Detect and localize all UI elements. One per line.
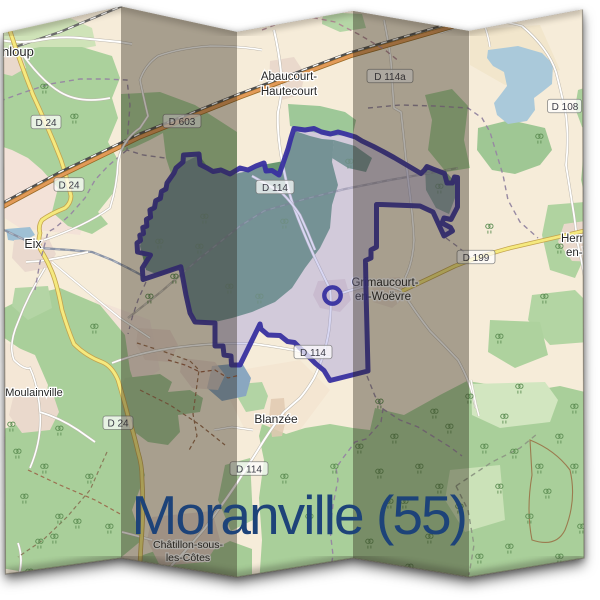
svg-text:Abaucourt-: Abaucourt-	[261, 71, 317, 83]
svg-text:D 108: D 108	[552, 102, 579, 113]
svg-text:D 114: D 114	[262, 183, 288, 194]
svg-text:Hautecourt: Hautecourt	[261, 86, 318, 98]
svg-text:Eix: Eix	[24, 237, 42, 251]
svg-text:D 24: D 24	[35, 118, 57, 129]
svg-text:D 114: D 114	[300, 348, 326, 359]
svg-text:nloup: nloup	[2, 44, 34, 59]
svg-text:D 24: D 24	[58, 181, 80, 192]
svg-text:Moranville (55): Moranville (55)	[132, 484, 466, 546]
svg-text:Moulainville: Moulainville	[5, 387, 62, 399]
svg-text:D 114: D 114	[236, 465, 262, 476]
svg-text:Blanzée: Blanzée	[254, 412, 298, 426]
